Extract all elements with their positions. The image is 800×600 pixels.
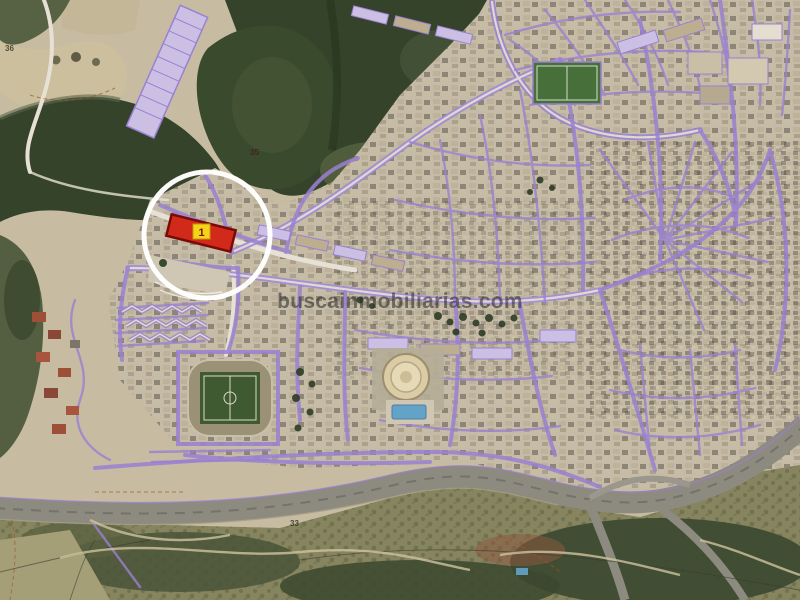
- map-canvas: 1 36 35 33 buscainmobiliarias.com: [0, 0, 800, 600]
- watermark-text: buscainmobiliarias.com: [277, 290, 523, 313]
- parcel-number-35: 35: [250, 148, 259, 157]
- aerial-cadastral-map: 1 36 35 33 buscainmobiliarias.com: [0, 0, 800, 600]
- parcel-number-36: 36: [5, 44, 14, 53]
- parcel-number-33: 33: [290, 519, 299, 528]
- swimming-pool: [392, 405, 426, 419]
- marker-label: 1: [198, 227, 204, 239]
